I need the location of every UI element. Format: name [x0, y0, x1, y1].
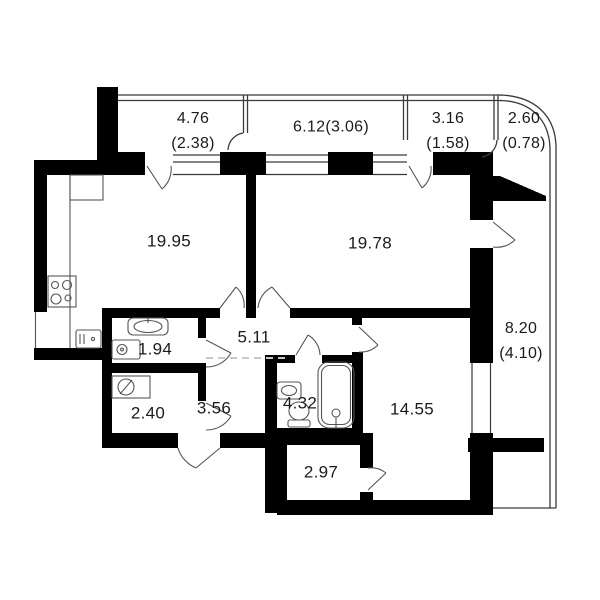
door-swing-icon: [220, 287, 244, 308]
kitchen-sink-icon: [76, 330, 101, 348]
sink-icon: [128, 318, 168, 335]
window-icon: [173, 155, 220, 175]
water-heater-icon: [112, 376, 150, 398]
room-label-wardrobe: 2.97: [304, 460, 338, 485]
door-swing-icon: [359, 327, 378, 352]
room-label-bathroom-small: 1.94: [138, 337, 172, 362]
door-swing-icon: [409, 166, 431, 188]
kitchen-cabinet-icon: [70, 175, 103, 200]
balcony-label-top-center: 6.12(3.06): [293, 115, 369, 140]
room-label-wc: 2.40: [131, 401, 165, 426]
room-label-hall: 3.56: [197, 396, 231, 421]
door-swing-icon: [493, 222, 515, 247]
door-swing-icon: [147, 166, 171, 189]
washing-machine-icon: [112, 340, 140, 359]
door-swing-icon: [368, 468, 386, 490]
floor-plan-drawing: [0, 0, 600, 600]
balcony-label-right: 8.20(4.10): [499, 316, 543, 366]
room-label-bathroom: 4.32: [283, 391, 317, 416]
room-label-bedroom-2: 14.55: [390, 397, 434, 422]
window-icon: [266, 155, 328, 175]
room-label-corridor: 5.11: [237, 325, 270, 350]
balcony-label-top-left: 4.76(2.38): [171, 106, 215, 156]
window-icon: [470, 363, 493, 433]
balcony-label-top-right: 3.16(1.58): [426, 106, 470, 156]
door-swing-icon: [206, 340, 231, 367]
stove-icon: [48, 276, 76, 307]
partition-door-swing-icon: [228, 133, 243, 150]
door-swing-icon: [258, 287, 290, 308]
window-icon: [373, 155, 407, 175]
door-swing-icon: [178, 448, 220, 468]
room-label-kitchen-living: 19.95: [147, 229, 191, 254]
balcony-label-corner: 2.60(0.78): [502, 106, 546, 156]
floor-plan: 19.95 19.78 5.11 1.94 2.40 3.56 4.32 14.…: [0, 0, 600, 600]
windows: [173, 155, 493, 433]
room-label-bedroom-1: 19.78: [348, 231, 392, 256]
bathtub-icon: [318, 362, 354, 428]
door-swing-icon: [296, 335, 320, 355]
